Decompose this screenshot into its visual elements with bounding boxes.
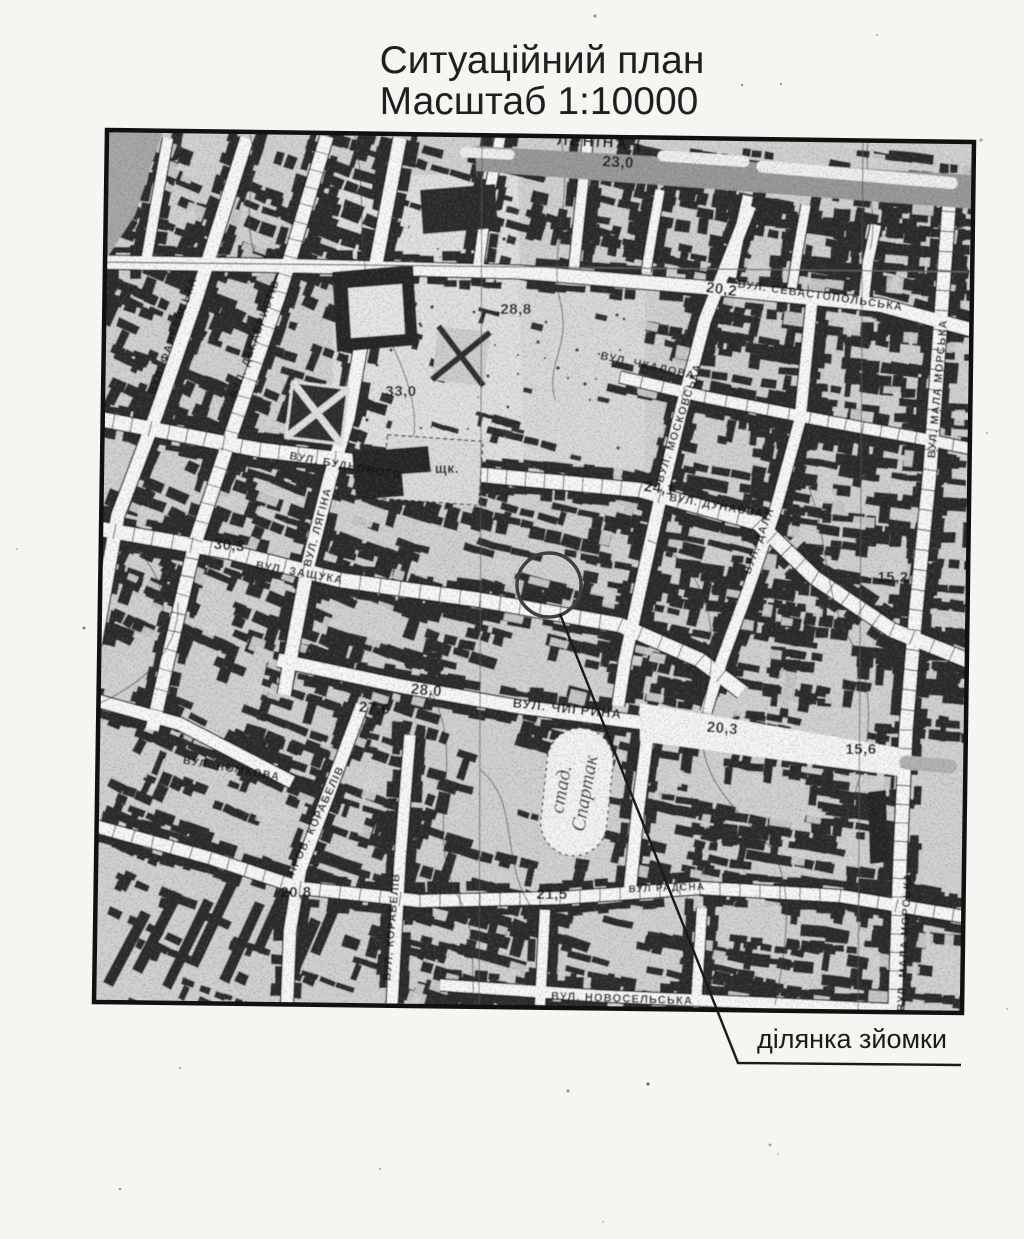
svg-text:15,6: 15,6 bbox=[845, 741, 876, 758]
svg-text:Масштаб 1:10000: Масштаб 1:10000 bbox=[380, 80, 699, 123]
svg-text:27,6: 27,6 bbox=[358, 699, 391, 719]
svg-text:15,2: 15,2 bbox=[877, 569, 908, 586]
svg-text:28,8: 28,8 bbox=[500, 301, 531, 318]
svg-text:20,8: 20,8 bbox=[280, 884, 311, 901]
svg-text:30,3: 30,3 bbox=[213, 536, 246, 556]
svg-text:33,0: 33,0 bbox=[385, 383, 416, 400]
svg-text:20,3: 20,3 bbox=[706, 719, 739, 739]
svg-text:щк.: щк. bbox=[435, 460, 459, 476]
svg-text:28,0: 28,0 bbox=[410, 681, 443, 701]
svg-text:ділянка зйомки: ділянка зйомки bbox=[757, 1024, 947, 1054]
svg-text:Ситуаційний план: Ситуаційний план bbox=[380, 39, 705, 82]
svg-text:23,0: 23,0 bbox=[602, 153, 634, 172]
svg-text:21,5: 21,5 bbox=[536, 886, 567, 903]
